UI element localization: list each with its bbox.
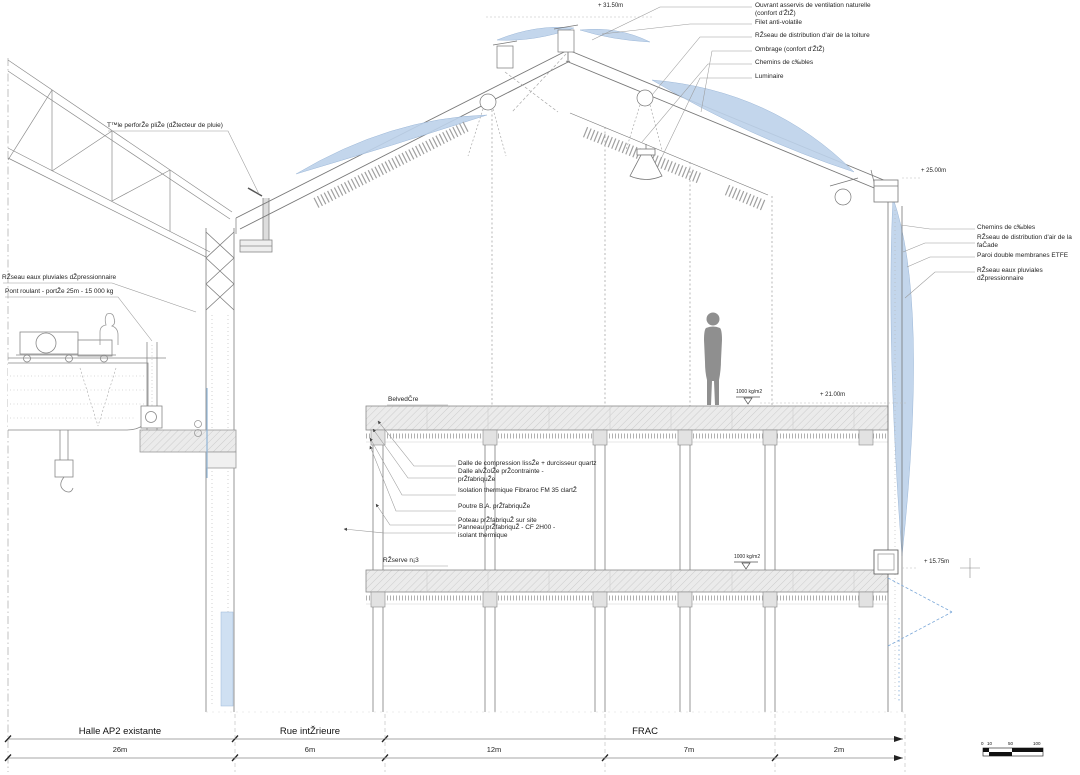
wall-door-glazing xyxy=(221,612,233,706)
zone-rue-interieure: Rue intŽrieure xyxy=(280,726,340,737)
facade-door-swing xyxy=(888,578,952,646)
roof-gutter-right xyxy=(874,180,898,202)
vent-opener-right xyxy=(558,30,574,52)
load-marker-upper: 1000 kg/m2 xyxy=(736,389,762,395)
level-15-75: + 15.75m xyxy=(924,559,949,565)
etfe-cushion-right-slope xyxy=(652,80,854,172)
vent-opener-left xyxy=(497,46,513,68)
vent-opener-eave xyxy=(835,189,851,205)
section-drawing-page: Ouvrant asservis de ventilation naturell… xyxy=(0,0,1080,775)
grid-dashed-verticals xyxy=(235,714,905,772)
vent-fan-left xyxy=(480,94,496,110)
annotation-ouvrant: Ouvrant asservis de ventilation naturell… xyxy=(755,2,885,19)
facade-vent-box xyxy=(874,550,898,574)
annotation-reseau-toiture: RŽseau de distribution d'air de la toitu… xyxy=(755,32,870,40)
vent-fan-right xyxy=(637,90,653,106)
label-reserve-n3: RŽserve n¡3 xyxy=(383,557,419,564)
roof-support-columns xyxy=(492,101,772,406)
annotation-paroi-etfe: Paroi double membranes ETFE xyxy=(977,252,1068,260)
left-gutter-downpipe xyxy=(236,188,272,252)
level-31-50: + 31.50m xyxy=(598,3,623,9)
scalebar-tick-100: 100 xyxy=(1033,741,1041,746)
crane-hook xyxy=(61,477,73,492)
span-6m: 6m xyxy=(305,745,315,754)
dimension-lines xyxy=(5,714,905,772)
level-21-00: + 21.00m xyxy=(820,392,845,398)
span-2m: 2m xyxy=(834,745,844,754)
etfe-cushion-apex-right xyxy=(580,29,650,42)
scalebar-tick-10: 10 xyxy=(987,741,992,746)
annotation-chemins-toiture: Chemins de c‰bles xyxy=(755,59,813,67)
annotation-ombrage: Ombrage (confort d'ŽtŽ) xyxy=(755,46,825,54)
crane-hoist-block xyxy=(55,460,73,477)
annotation-reseau-facade: RŽseau de distribution d'air de la faČad… xyxy=(977,234,1073,251)
slab-belvedere xyxy=(366,406,888,430)
halle-wall-column xyxy=(140,228,236,712)
zone-halle-ap2: Halle AP2 existante xyxy=(79,726,161,737)
annotation-dalle-alveolee: Dalle alvŽolŽe prŽcontrainte - prŽfabriq… xyxy=(458,468,562,485)
span-7m: 7m xyxy=(684,745,694,754)
floor-slabs xyxy=(366,406,888,607)
annotation-eaux-pluviales-gauche: RŽseau eaux pluviales dŽpressionnaire xyxy=(2,274,116,282)
annotation-poutre: Poutre B.A. prŽfabriquŽe xyxy=(458,503,530,511)
rain-detector-plate xyxy=(248,188,262,196)
load-marker-lower: 1000 kg/m2 xyxy=(734,554,760,560)
annotation-pont-roulant: Pont roulant - portŽe 25m - 15 000 kg xyxy=(5,288,113,296)
wall-corbel-slab xyxy=(140,430,236,452)
annotation-eaux-pluviales-droite: RŽseau eaux pluviales dŽpressionnaire xyxy=(977,267,1080,284)
span-26m: 26m xyxy=(113,745,128,754)
right-facade xyxy=(206,17,980,712)
annotation-isolation: Isolation thermique Fibraroc FM 35 clart… xyxy=(458,487,577,495)
zone-frac: FRAC xyxy=(632,726,658,737)
crane-motor xyxy=(36,333,56,353)
level-25-00: + 25.00m xyxy=(921,168,946,174)
crane-pont-roulant xyxy=(8,314,166,493)
annotation-tole-perforee: T™le perforŽe pliŽe (dŽtecteur de pluie) xyxy=(107,122,223,130)
scale-bar xyxy=(983,748,1043,756)
annotation-luminaire: Luminaire xyxy=(755,73,784,81)
halle-truss-roof xyxy=(8,60,232,257)
annotation-chemins-facade: Chemins de c‰bles xyxy=(977,224,1035,232)
person-silhouette xyxy=(704,313,722,406)
span-12m: 12m xyxy=(487,745,502,754)
section-drawing-canvas xyxy=(0,0,1080,775)
scalebar-tick-0: 0 xyxy=(981,741,984,746)
slab-reserve xyxy=(366,570,888,592)
annotation-filet: Filet anti-volatile xyxy=(755,19,802,27)
crosshair-symbol xyxy=(960,558,980,578)
label-belvedere: BelvedČre xyxy=(388,396,418,403)
annotation-panneau: Panneau prŽfabriquŽ - CF 2H00 - isolant … xyxy=(458,524,574,541)
scalebar-tick-50: 50 xyxy=(1008,741,1013,746)
